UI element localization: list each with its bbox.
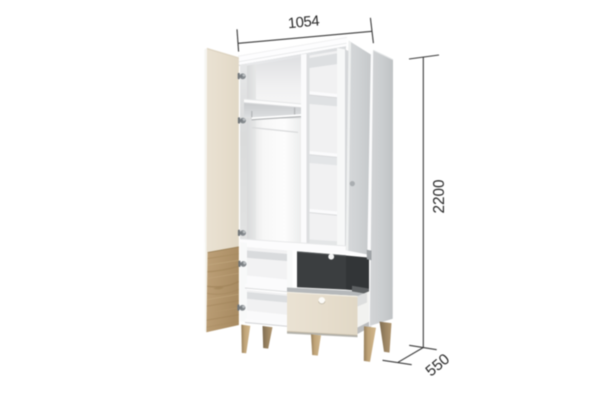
svg-text:1054: 1054 — [287, 13, 320, 32]
svg-text:2200: 2200 — [431, 179, 448, 213]
